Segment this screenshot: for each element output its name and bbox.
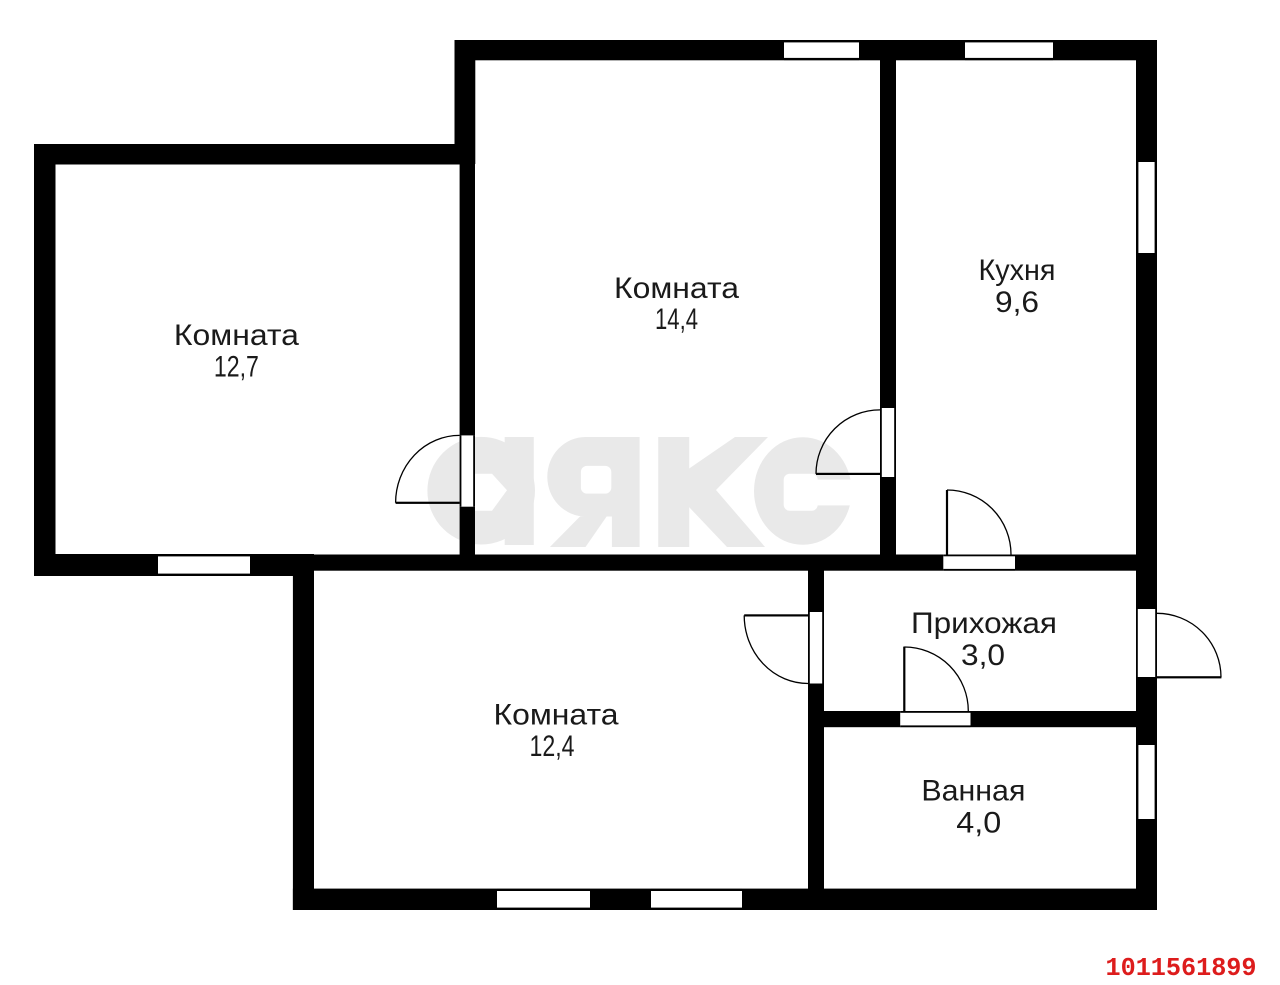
svg-text:9,6: 9,6 xyxy=(995,286,1039,319)
svg-text:Комната: Комната xyxy=(614,272,739,305)
svg-text:Комната: Комната xyxy=(174,319,299,352)
svg-text:Ванная: Ванная xyxy=(921,775,1025,808)
svg-text:14,4: 14,4 xyxy=(655,303,698,336)
svg-text:Прихожая: Прихожая xyxy=(911,607,1057,640)
svg-text:3,0: 3,0 xyxy=(961,639,1005,672)
svg-text:Кухня: Кухня xyxy=(979,254,1056,287)
svg-text:12,7: 12,7 xyxy=(214,351,259,384)
svg-text:12,4: 12,4 xyxy=(530,730,575,763)
svg-text:Комната: Комната xyxy=(494,699,619,732)
svg-text:1011561899: 1011561899 xyxy=(1106,954,1257,983)
svg-text:4,0: 4,0 xyxy=(956,807,1001,840)
